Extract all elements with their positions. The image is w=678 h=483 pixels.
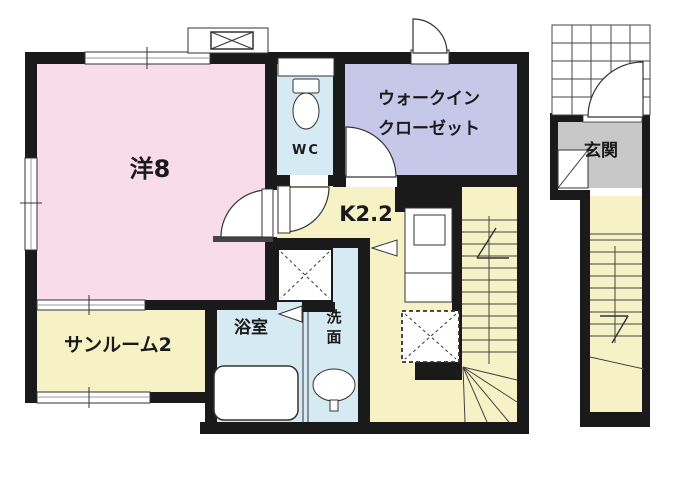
pipe-space-label: PS (408, 186, 448, 196)
wash-basin-icon (313, 369, 355, 401)
walk-in-closet-label-line1: ウォークイン (349, 90, 509, 110)
kitchen-label: K2.2 (316, 202, 416, 226)
entrance-stairs-area (586, 196, 642, 412)
closet-doorway (346, 176, 397, 187)
door-leaf (278, 186, 290, 233)
western-room-label: 洋8 (90, 156, 210, 184)
wall-right (517, 52, 529, 434)
entrance-label: 玄関 (560, 142, 642, 162)
toilet-icon (293, 93, 319, 129)
wall-entrance-left (550, 113, 558, 200)
bathroom-label: 浴室 (211, 319, 291, 339)
wc-doorway (290, 175, 328, 186)
wall-entrance-jog (550, 190, 590, 200)
wc-label: WC (276, 144, 336, 159)
door-leaf (262, 189, 273, 237)
wash-basin-stem (330, 400, 338, 411)
wall-wc-right (333, 52, 345, 187)
wall-washroom-right (358, 248, 370, 422)
wall-western-room-right-upper (265, 52, 277, 190)
sunroom-label: サンルーム2 (28, 335, 208, 357)
wall-entrance-stairs-left (580, 200, 590, 427)
wall-entrance-right (642, 113, 650, 427)
kitchen-sink-icon (414, 215, 445, 245)
toilet-icon (293, 79, 319, 93)
wall-entrance-bottom (580, 412, 650, 427)
washroom-label: 洗面 (325, 307, 343, 348)
wall-wc-bottom-left (277, 175, 290, 186)
door-swing-arc-icon (413, 19, 447, 53)
floor-plan: 洋8 サンルーム2 WC ウォークイン クローゼット K2.2 PS 浴室 洗面… (0, 0, 678, 483)
floor-plan-drawing (0, 0, 678, 483)
wall-stairs-stub (415, 362, 462, 380)
wall-hall-laundry (267, 238, 370, 248)
wc-window-inset (278, 58, 334, 76)
wall-bottom (200, 422, 529, 434)
bathtub-icon (214, 366, 298, 420)
walk-in-closet-label-line2: クローゼット (349, 120, 509, 140)
